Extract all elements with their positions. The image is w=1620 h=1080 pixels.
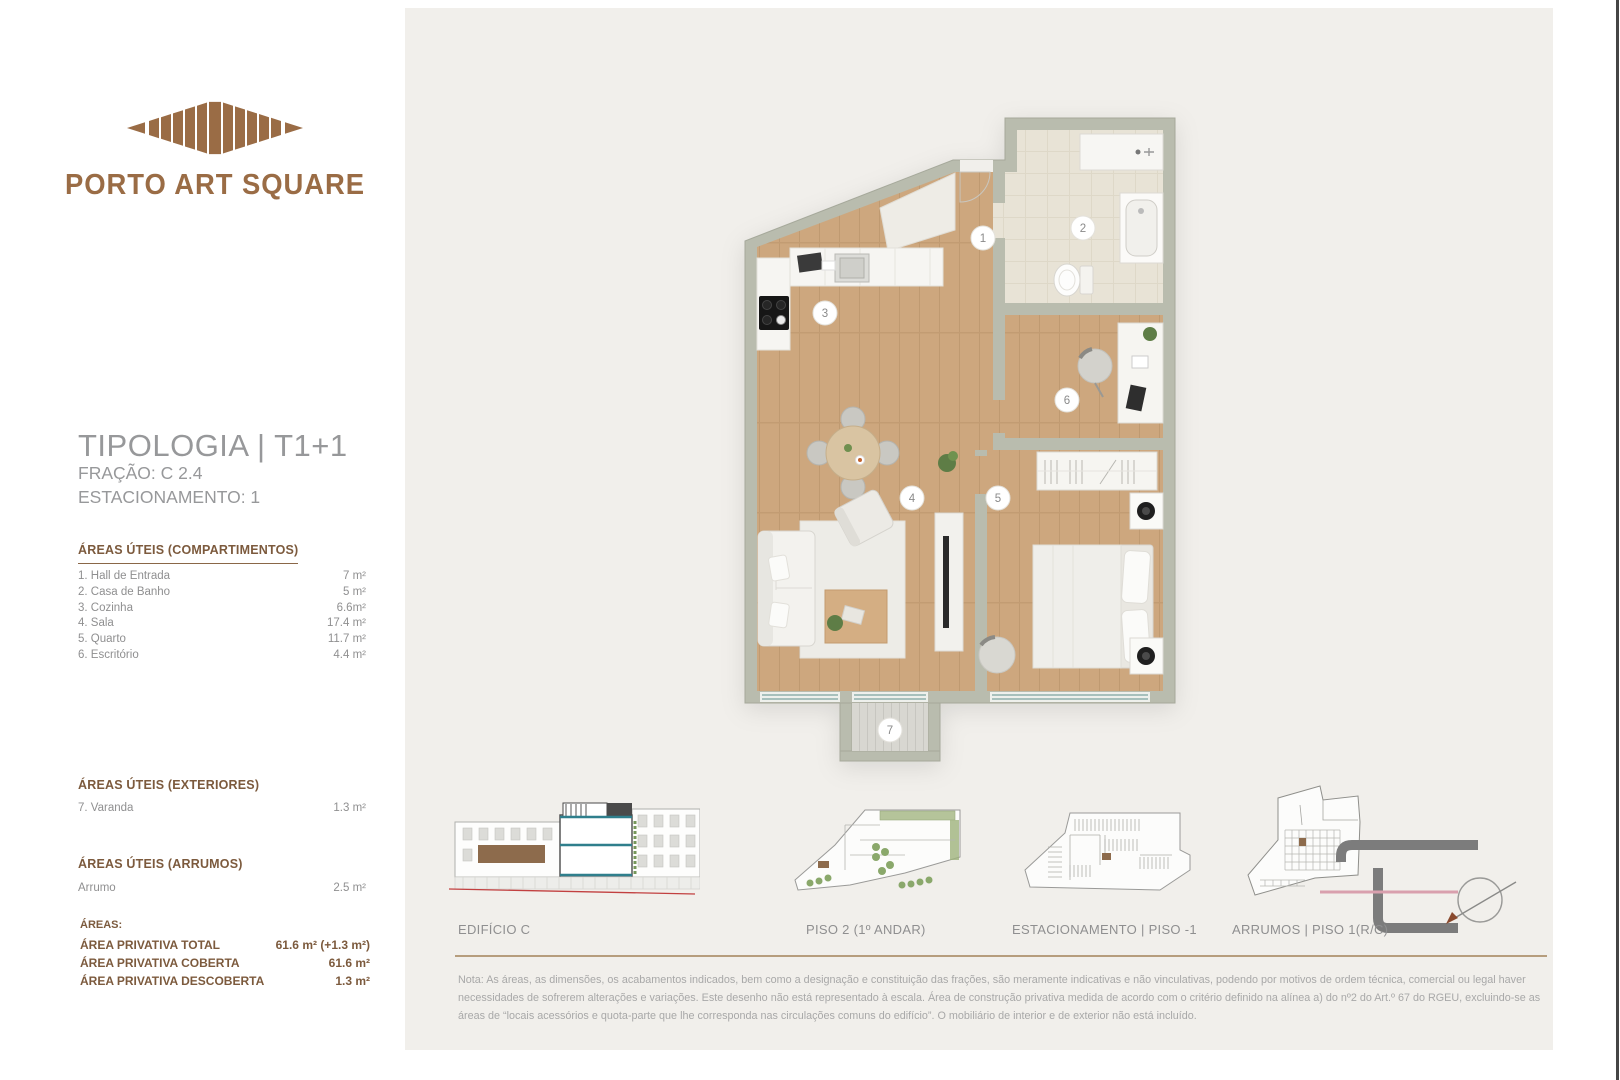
- room-badge: 2: [1071, 216, 1095, 240]
- room-badge: 3: [813, 301, 837, 325]
- architect-mark-icon: [1320, 800, 1520, 940]
- section-heading-exteriores: ÁREAS ÚTEIS (EXTERIORES): [78, 778, 259, 792]
- room-badge: 5: [986, 486, 1010, 510]
- area-label: 7. Varanda: [78, 802, 133, 814]
- area-row: Arrumo 2.5 m²: [78, 882, 366, 894]
- total-row: ÁREA PRIVATIVA COBERTA 61.6 m²: [80, 956, 370, 970]
- office-door-opening: [993, 400, 1005, 433]
- room-badge: 6: [1055, 388, 1079, 412]
- nightstand: [1130, 638, 1163, 674]
- room-badge: 1: [971, 226, 995, 250]
- highlighted-storage: [1299, 838, 1306, 846]
- area-row: 7. Varanda 1.3 m²: [78, 802, 366, 814]
- page-right-edge: [1616, 0, 1619, 1080]
- room-number: 7: [887, 725, 893, 737]
- caption-piso-2: PISO 2 (1º ANDAR): [806, 922, 926, 937]
- area-row: 4. Sala 17.4 m²: [78, 617, 366, 629]
- area-label: Arrumo: [78, 882, 116, 894]
- bathtub: [1120, 193, 1163, 263]
- area-row: 5. Quarto 11.7 m²: [78, 633, 366, 645]
- ground-line: [449, 889, 695, 894]
- area-value: 6.6m²: [337, 602, 366, 614]
- caption-edificio-c: EDIFÍCIO C: [458, 922, 530, 937]
- piso-2-diagram: [790, 795, 965, 900]
- area-value: 1.3 m²: [333, 802, 366, 814]
- edificio-c-diagram: [445, 797, 700, 897]
- section-heading-arrumos: ÁREAS ÚTEIS (ARRUMOS): [78, 857, 243, 871]
- section-heading-compartimentos: ÁREAS ÚTEIS (COMPARTIMENTOS): [78, 543, 298, 564]
- coffee-table: [825, 590, 887, 643]
- area-row: 6. Escritório 4.4 m²: [78, 649, 366, 661]
- area-value: 11.7 m²: [328, 633, 366, 645]
- highlighted-fraction: [478, 845, 545, 863]
- area-label: 1. Hall de Entrada: [78, 570, 170, 582]
- room-number: 4: [909, 493, 916, 505]
- tv-board: [935, 513, 963, 651]
- total-row: ÁREA PRIVATIVA DESCOBERTA 1.3 m²: [80, 974, 370, 988]
- area-value: 2.5 m²: [333, 882, 366, 894]
- area-label: 5. Quarto: [78, 633, 126, 645]
- room-number: 2: [1080, 223, 1086, 235]
- room-badge: 4: [900, 486, 924, 510]
- north-arrow-icon: [1446, 878, 1516, 924]
- caption-arrumos: ARRUMOS | PISO 1(R/C): [1232, 922, 1388, 937]
- highlighted-fraction: [818, 861, 829, 868]
- countertop-laptop: [797, 252, 823, 272]
- total-value: 61.6 m²: [329, 956, 370, 970]
- legal-note: Nota: As áreas, as dimensões, os acabame…: [458, 971, 1546, 1025]
- fraction-label: FRAÇÃO: C 2.4: [78, 463, 202, 484]
- brand-logo: PORTO ART SQUARE: [50, 82, 380, 207]
- area-label: 4. Sala: [78, 617, 114, 629]
- office-plant: [1143, 327, 1157, 341]
- area-value: 4.4 m²: [333, 649, 366, 661]
- tv: [943, 536, 949, 628]
- area-label: 2. Casa de Banho: [78, 586, 170, 598]
- area-row: 2. Casa de Banho 5 m²: [78, 586, 366, 598]
- plant: [948, 451, 958, 461]
- vanity: [1080, 134, 1163, 170]
- entrance-door-opening: [960, 160, 993, 172]
- caption-estacionamento: ESTACIONAMENTO | PISO -1: [1012, 922, 1197, 937]
- floor-plan: 1 2 3 4 5 6 7: [740, 108, 1180, 768]
- page-title: TIPOLOGIA | T1+1: [78, 428, 348, 464]
- room-number: 6: [1064, 395, 1070, 407]
- area-row: 3. Cozinha 6.6m²: [78, 602, 366, 614]
- room-badge: 7: [878, 718, 902, 742]
- area-value: 17.4 m²: [327, 617, 366, 629]
- total-label: ÁREA PRIVATIVA COBERTA: [80, 956, 240, 970]
- bathroom-door-opening: [993, 203, 1005, 238]
- total-label: ÁREA PRIVATIVA DESCOBERTA: [80, 974, 264, 988]
- brand-wordmark: PORTO ART SQUARE: [65, 169, 365, 201]
- room-number: 1: [980, 233, 986, 245]
- room-number: 3: [822, 308, 828, 320]
- area-label: 6. Escritório: [78, 649, 139, 661]
- section-heading-areas: ÁREAS:: [80, 919, 122, 931]
- bedroom-door-opening: [975, 456, 987, 494]
- cooktop: [759, 296, 789, 330]
- total-label: ÁREA PRIVATIVA TOTAL: [80, 938, 220, 952]
- nightstand: [1130, 493, 1163, 529]
- highlighted-parking: [1102, 853, 1111, 860]
- bedroom-chair: [979, 637, 1015, 673]
- area-value: 7 m²: [343, 570, 366, 582]
- estacionamento-diagram: [1010, 795, 1200, 900]
- wardrobe: [1037, 452, 1157, 490]
- area-value: 5 m²: [343, 586, 366, 598]
- office-desk: [1118, 323, 1163, 423]
- total-value: 61.6 m² (+1.3 m²): [276, 938, 370, 952]
- brochure-page: PORTO ART SQUARE TIPOLOGIA | T1+1 FRAÇÃO…: [0, 0, 1620, 1080]
- brand-logo-icon: [127, 102, 303, 154]
- toilet: [1054, 264, 1093, 296]
- area-row: 1. Hall de Entrada 7 m²: [78, 570, 366, 582]
- footer-divider: [455, 955, 1547, 957]
- room-number: 5: [995, 493, 1001, 505]
- parking-label: ESTACIONAMENTO: 1: [78, 487, 260, 508]
- total-row: ÁREA PRIVATIVA TOTAL 61.6 m² (+1.3 m²): [80, 938, 370, 952]
- sofa: [758, 531, 815, 646]
- area-label: 3. Cozinha: [78, 602, 133, 614]
- total-value: 1.3 m²: [335, 974, 370, 988]
